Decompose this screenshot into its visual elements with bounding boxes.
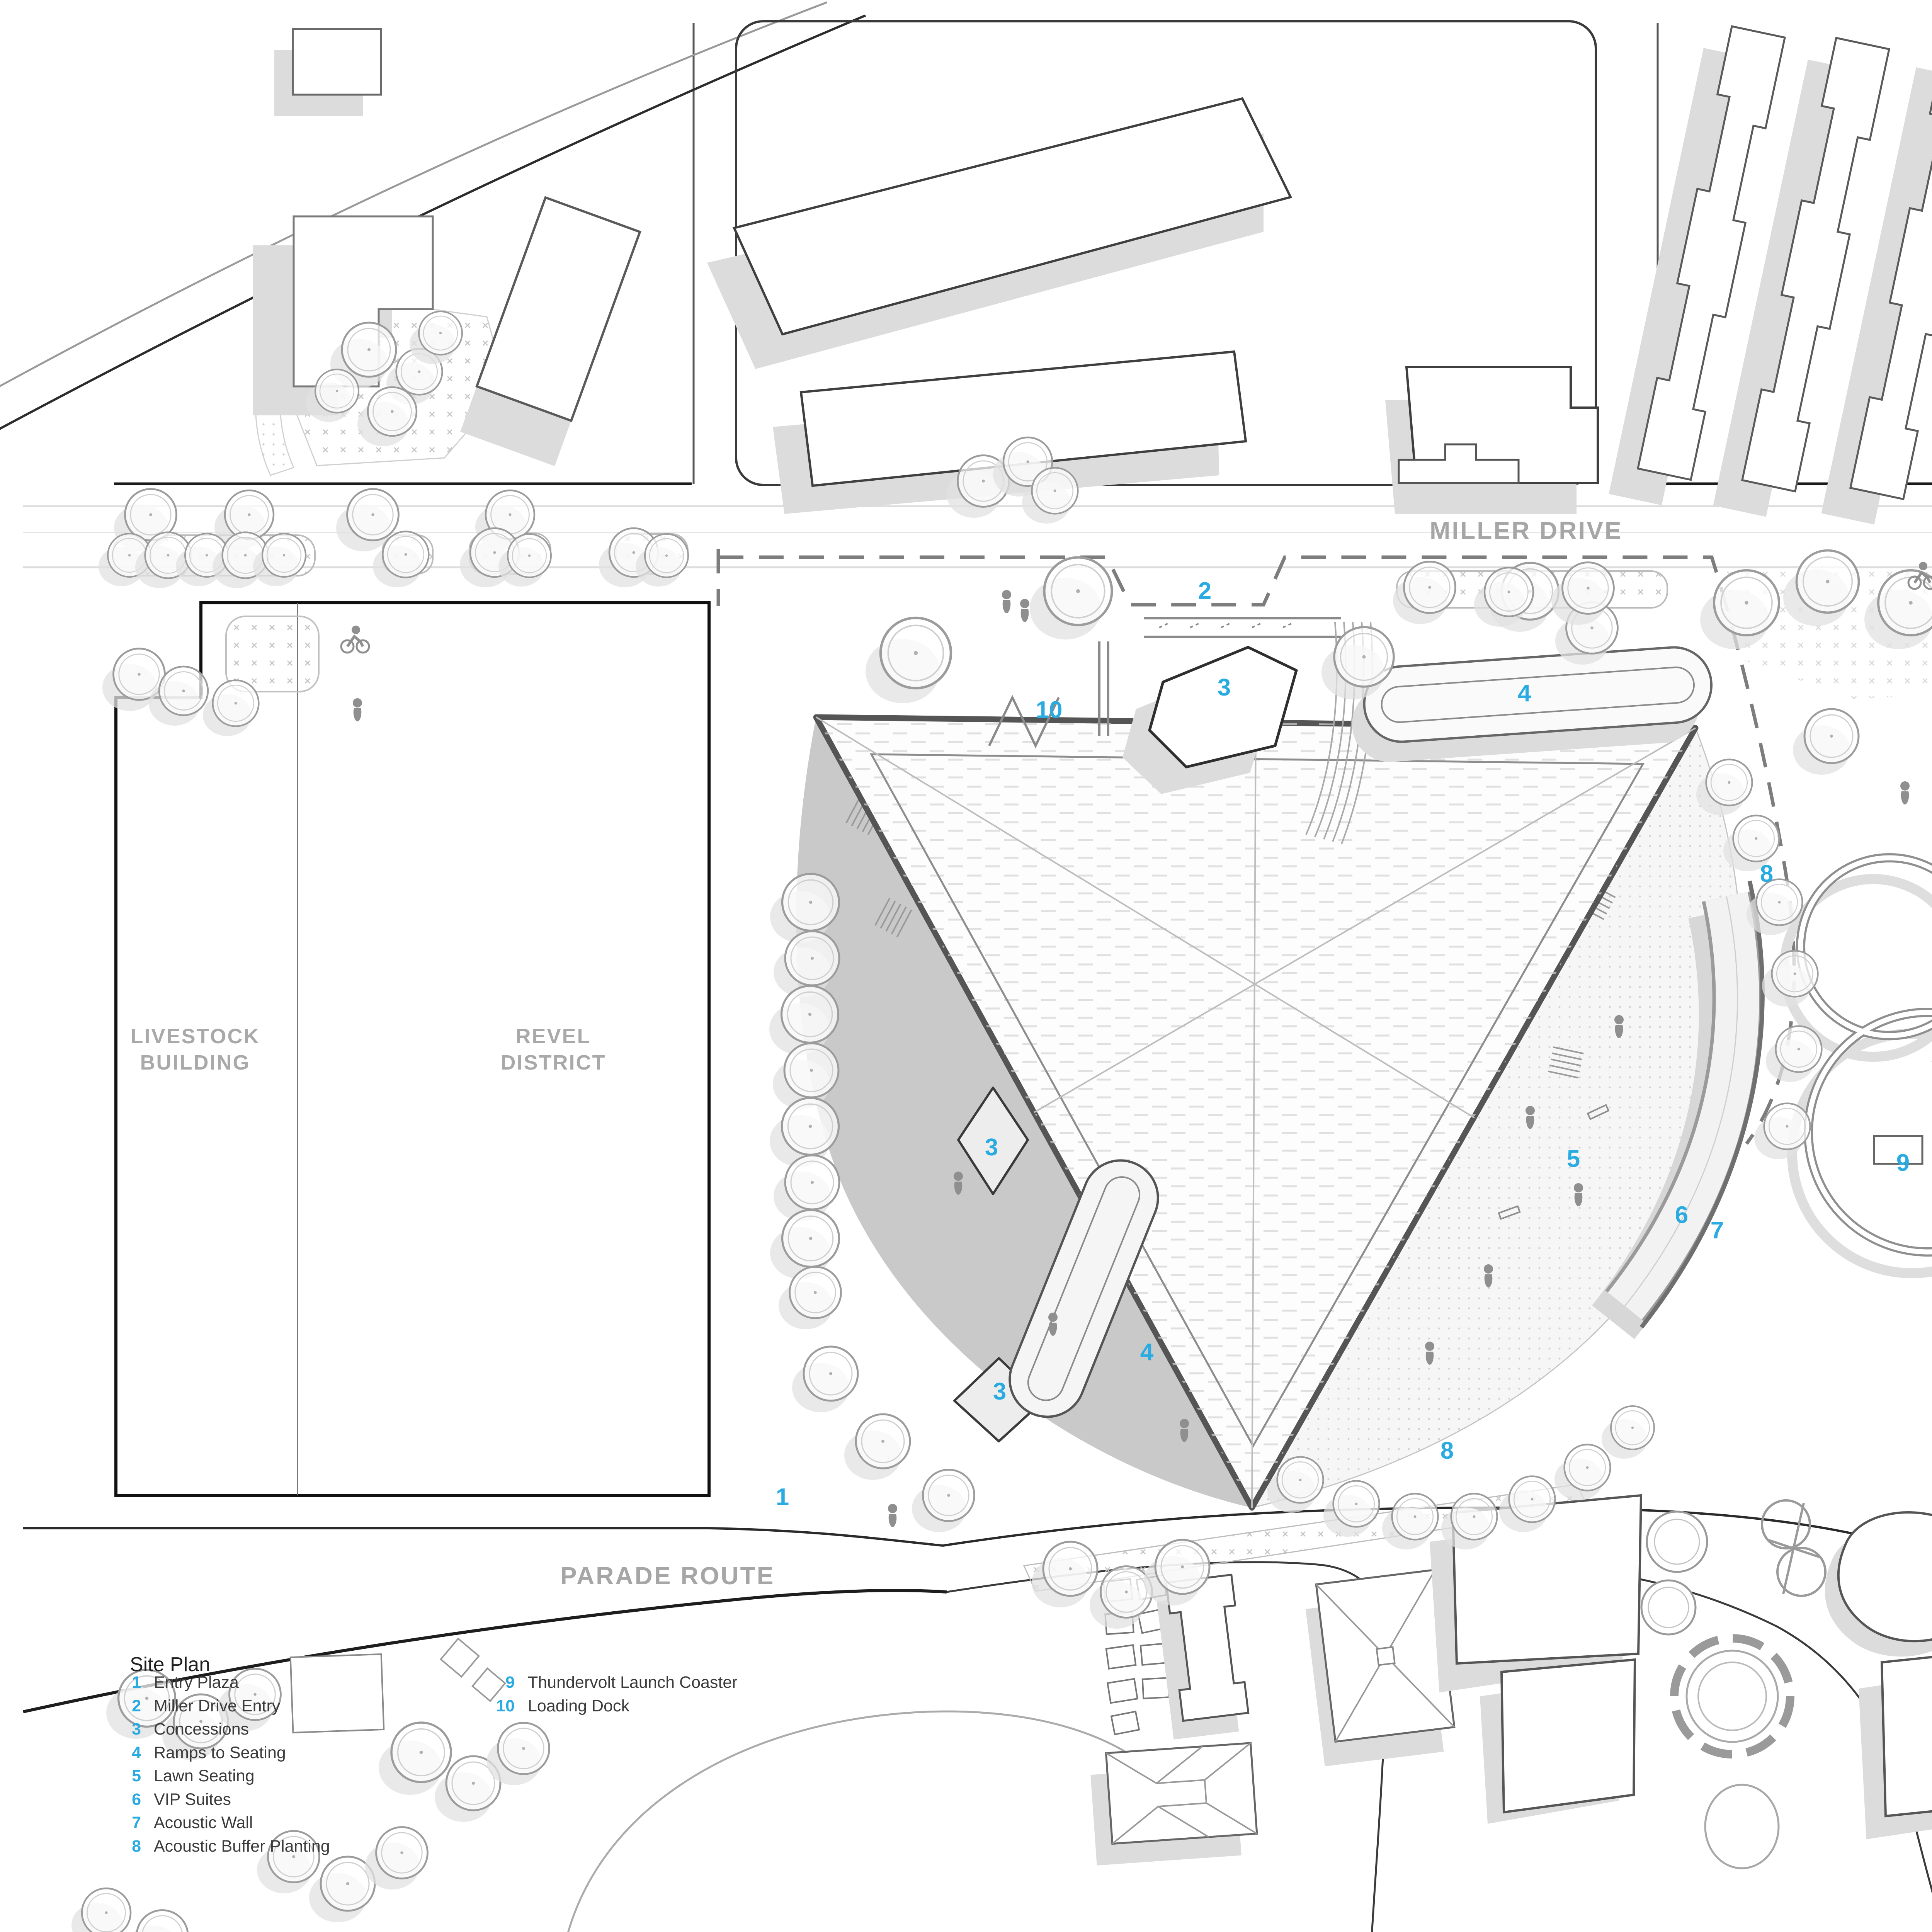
revel-district-label-line1: REVEL: [515, 1025, 591, 1048]
legend-item-number: 2: [132, 1697, 141, 1715]
plan-marker: 7: [1711, 1217, 1724, 1244]
legend-item-label: Concessions: [154, 1720, 249, 1738]
carousel-planters: [1641, 1512, 1707, 1634]
north-block: [707, 21, 1598, 514]
thundervolt-coaster-park: [1784, 722, 1932, 1273]
gear-ride: [1674, 1638, 1790, 1754]
livestock-revel-block: [116, 603, 709, 1495]
plan-marker: 3: [1218, 674, 1231, 701]
miller-drive-label: MILLER DRIVE: [1430, 517, 1623, 544]
person-icon: [1002, 590, 1011, 613]
hip-roof-pavilion: [1090, 1743, 1257, 1866]
legend-item-number: 7: [132, 1813, 141, 1832]
legend-item-number: 9: [505, 1673, 515, 1692]
legend-item-label: VIP Suites: [154, 1790, 231, 1809]
person-icon: [888, 1504, 897, 1527]
plan-marker: 5: [1567, 1146, 1580, 1172]
legend-item-number: 5: [132, 1767, 141, 1785]
blob-building: [1825, 1512, 1932, 1656]
legend-item-label: Lawn Seating: [154, 1767, 255, 1785]
plan-marker: 4: [1518, 680, 1531, 707]
ride-ellipse: [1705, 1785, 1779, 1868]
site-plan-page: LIVESTOCK BUILDING REVEL DISTRICT: [0, 0, 1932, 1932]
legend-item-number: 6: [132, 1790, 141, 1809]
shed-building: [274, 29, 381, 116]
legend-item-number: 4: [132, 1743, 141, 1762]
legend-item-label: Acoustic Wall: [154, 1813, 253, 1832]
plan-marker: 8: [1440, 1437, 1454, 1464]
livestock-building-label-line1: LIVESTOCK: [130, 1025, 260, 1048]
legend-item-label: Acoustic Buffer Planting: [154, 1837, 330, 1855]
coaster-track: [1801, 722, 1932, 1252]
plan-marker: 10: [1036, 697, 1063, 723]
legend-item-label: Loading Dock: [528, 1697, 629, 1715]
legend-title: Site Plan: [130, 1653, 210, 1676]
legend-item-number: 1: [132, 1673, 141, 1692]
legend-item-label: Entry Plaza: [154, 1673, 239, 1692]
site-plan-drawing: LIVESTOCK BUILDING REVEL DISTRICT: [0, 0, 1932, 1932]
legend-item-label: Thundervolt Launch Coaster: [528, 1673, 738, 1692]
warehouse-building-large: [707, 99, 1291, 369]
revel-district-label-line2: DISTRICT: [501, 1051, 606, 1074]
plan-marker: 3: [993, 1378, 1006, 1405]
plan-marker: 9: [1896, 1150, 1910, 1176]
coaster-track-shadow: [1784, 743, 1932, 1273]
legend-item-number: 3: [132, 1720, 141, 1738]
stepped-building: [1385, 367, 1598, 514]
legend-item-label: Ramps to Seating: [154, 1743, 286, 1762]
entry-walkway: [1144, 618, 1341, 637]
legend-item-number: 8: [132, 1837, 141, 1855]
plan-marker: 6: [1675, 1202, 1688, 1228]
exhibition-building-b: [1480, 1660, 1635, 1824]
plan-marker: 3: [985, 1134, 998, 1161]
exhibition-building-c: [1859, 1646, 1932, 1839]
person-icon: [1020, 599, 1029, 622]
legend-item-number: 10: [496, 1697, 515, 1715]
plan-marker: 4: [1140, 1339, 1154, 1366]
livestock-building-label-line2: BUILDING: [140, 1051, 250, 1074]
plan-marker: 1: [776, 1484, 789, 1510]
mini-figure8-coaster: [1762, 1500, 1825, 1596]
parade-route-label: PARADE ROUTE: [560, 1562, 775, 1590]
west-blocks: LIVESTOCK BUILDING REVEL DISTRICT: [116, 603, 709, 1495]
plan-marker: 2: [1198, 578, 1211, 604]
legend-item-label: Miller Drive Entry: [154, 1697, 281, 1715]
person-icon: [1900, 781, 1910, 804]
plan-marker: 8: [1760, 861, 1773, 887]
